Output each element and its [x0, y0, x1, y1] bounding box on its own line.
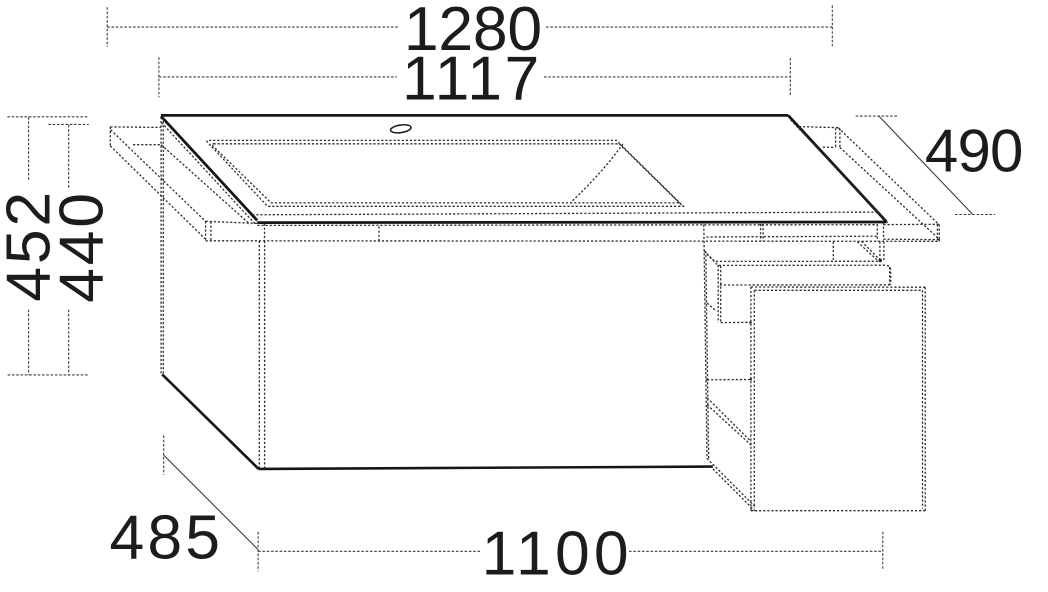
- svg-text:490: 490: [925, 117, 1024, 184]
- svg-text:1100: 1100: [482, 518, 629, 588]
- svg-text:440: 440: [46, 193, 116, 303]
- svg-text:485: 485: [110, 503, 221, 573]
- svg-text:1117: 1117: [402, 44, 539, 114]
